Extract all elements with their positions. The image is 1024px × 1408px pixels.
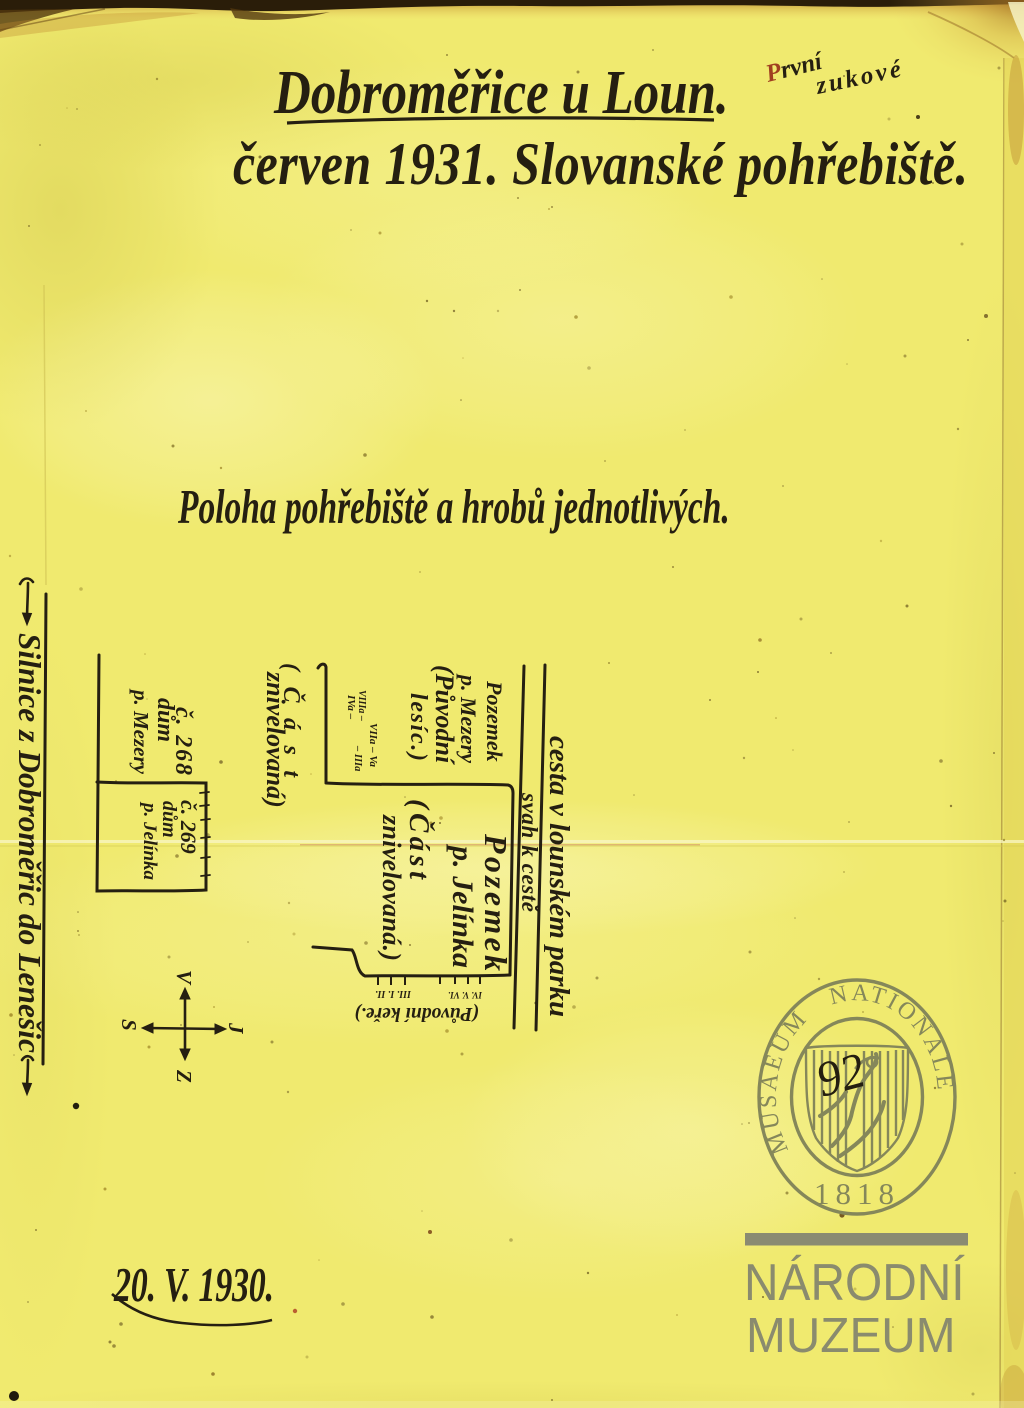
svg-text:(Původní keře.): (Původní keře.) [354,1003,479,1024]
svg-text:Silnice z Dobroměřic do Leneši: Silnice z Dobroměřic do Lenešic [12,633,47,1053]
svg-text:S: S [117,1019,141,1031]
svg-text:(Původní: (Původní [430,665,459,765]
svg-text:cesta v lounském parku: cesta v lounském parku [543,736,575,1017]
svg-text:znivelovaná.): znivelovaná.) [377,814,406,961]
svg-text:J: J [224,1022,248,1035]
svg-text:p. Jelínka: p. Jelínka [446,843,479,968]
svg-text:svah k cestě: svah k cestě [517,792,542,913]
svg-text:V: V [172,970,196,986]
svg-text:dům: dům [158,801,180,838]
svg-text:p. Jelínka: p. Jelínka [139,801,160,881]
svg-text:znivelovaná): znivelovaná) [261,671,290,808]
svg-text:dům: dům [152,698,178,742]
svg-text:20. V. 1930.: 20. V. 1930. [113,1259,274,1312]
svg-text:Poloha pohřebiště a hrobů jedn: Poloha pohřebiště a hrobů jednotlivých. [177,481,730,535]
svg-text:lesíc.): lesíc.) [405,693,431,761]
svg-text:Z: Z [172,1069,196,1083]
svg-text:p. Mezery: p. Mezery [129,688,153,775]
svg-text:III. I. II.: III. I. II. [375,988,412,999]
svg-text:VIIa – Va: VIIa – Va [367,723,379,768]
svg-text:IVa –: IVa – [345,694,357,720]
svg-text:Pozemek: Pozemek [482,680,507,762]
svg-text:IV. V. VI.: IV. V. VI. [448,990,483,1000]
svg-text:1818: 1818 [814,1176,900,1211]
svg-text:MUZEUM: MUZEUM [746,1308,956,1363]
svg-text:– IIIa: – IIIa [352,745,363,771]
svg-text:červen 1931. Slovanské pohřebi: červen 1931. Slovanské pohřebiště. [233,131,968,197]
svg-text:NÁRODNÍ: NÁRODNÍ [744,1253,965,1311]
